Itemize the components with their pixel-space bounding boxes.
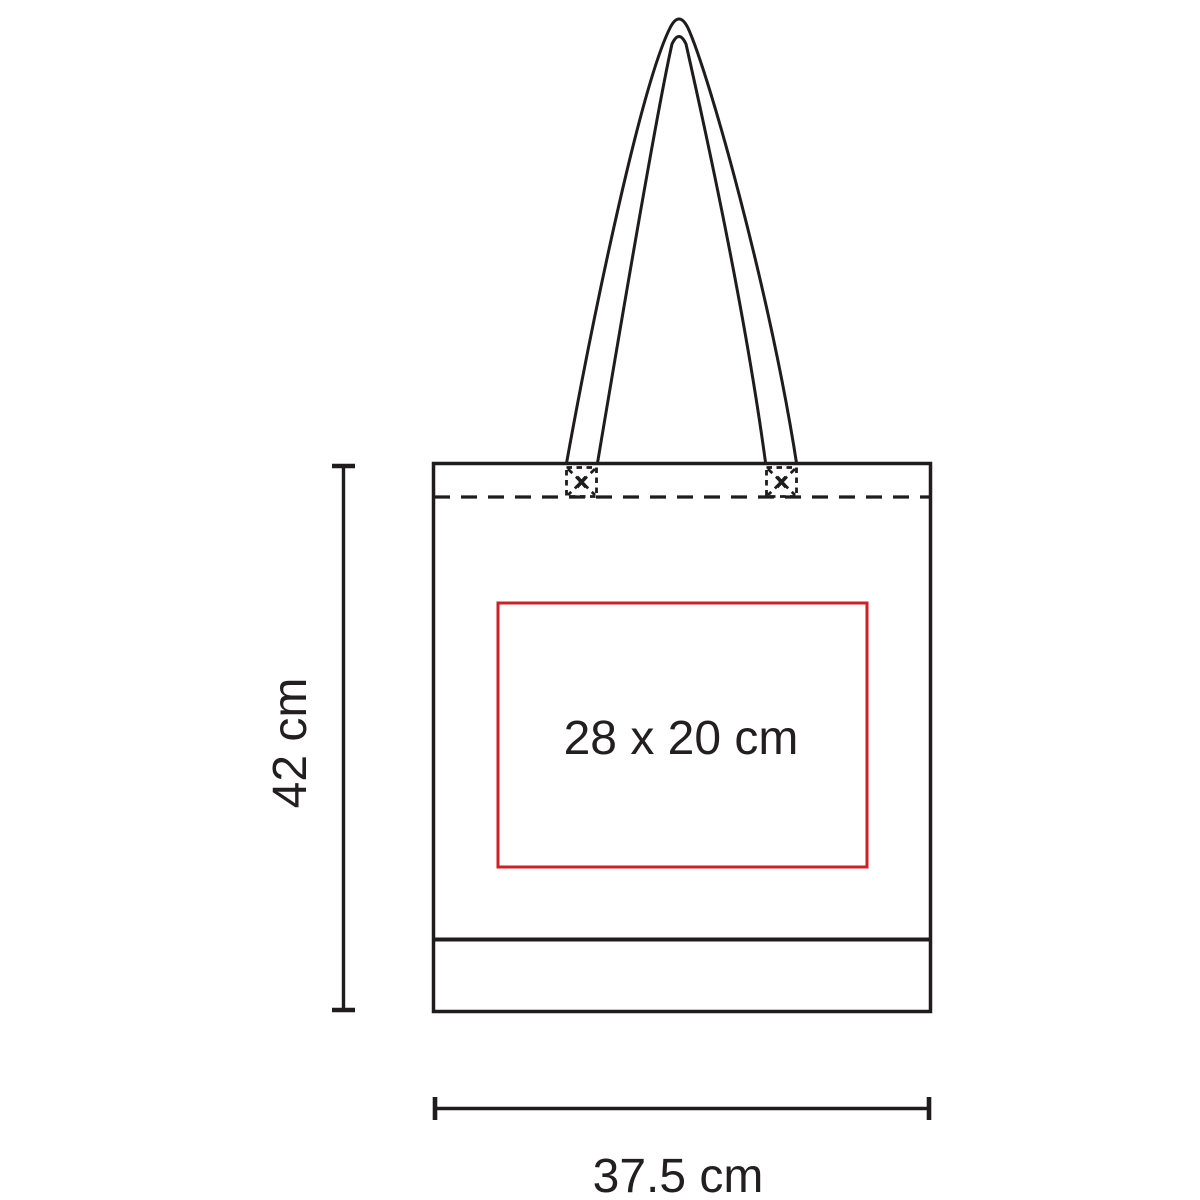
print-area-size-label: 28 x 20 cm [564, 712, 799, 765]
bag-dimension-diagram: 28 x 20 cm 42 cm 37.5 cm [0, 0, 1200, 1200]
bag-height-label: 42 cm [264, 678, 317, 809]
diagram-canvas: 28 x 20 cm 42 cm 37.5 cm [0, 0, 1200, 1200]
bag-width-label: 37.5 cm [593, 1150, 764, 1200]
height-dimension-line: 42 cm [264, 466, 355, 1010]
bag-handle-inner-line [597, 37, 766, 467]
bag-handle-outer-line [566, 19, 797, 466]
width-dimension-line: 37.5 cm [435, 1097, 929, 1200]
